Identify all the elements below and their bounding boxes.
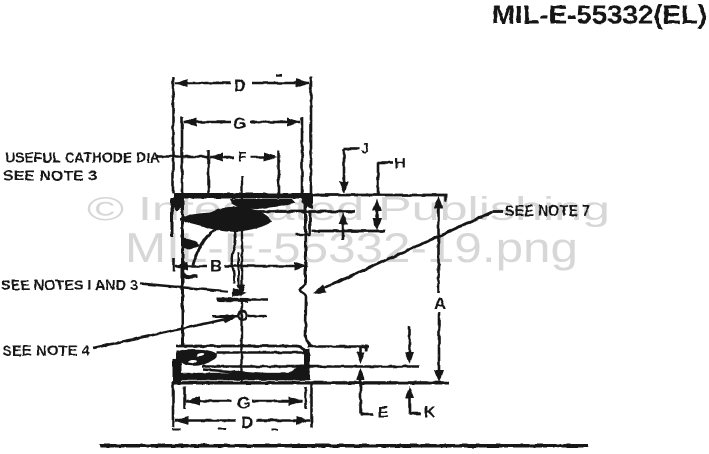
- svg-text:F: F: [238, 149, 247, 165]
- svg-text:K: K: [424, 405, 436, 422]
- svg-text:SEE NOTE 4: SEE NOTE 4: [2, 343, 91, 360]
- svg-text:H: H: [395, 155, 406, 172]
- svg-text:SEE NOTE 3: SEE NOTE 3: [3, 168, 97, 185]
- svg-text:J: J: [361, 140, 369, 156]
- svg-text:G: G: [237, 394, 250, 413]
- svg-text:MIL-E-55332(EL): MIL-E-55332(EL): [492, 0, 707, 30]
- svg-text:USEFUL CATHODE DIA: USEFUL CATHODE DIA: [5, 150, 160, 167]
- svg-text:D: D: [234, 77, 246, 95]
- svg-text:A: A: [434, 294, 446, 313]
- svg-text:SEE NOTE 7: SEE NOTE 7: [505, 203, 590, 220]
- svg-text:B: B: [210, 257, 222, 276]
- svg-text:D: D: [241, 413, 253, 432]
- svg-text:E: E: [378, 405, 389, 422]
- svg-text:G: G: [233, 114, 246, 133]
- svg-text:SEE NOTES I AND 3: SEE NOTES I AND 3: [1, 277, 138, 294]
